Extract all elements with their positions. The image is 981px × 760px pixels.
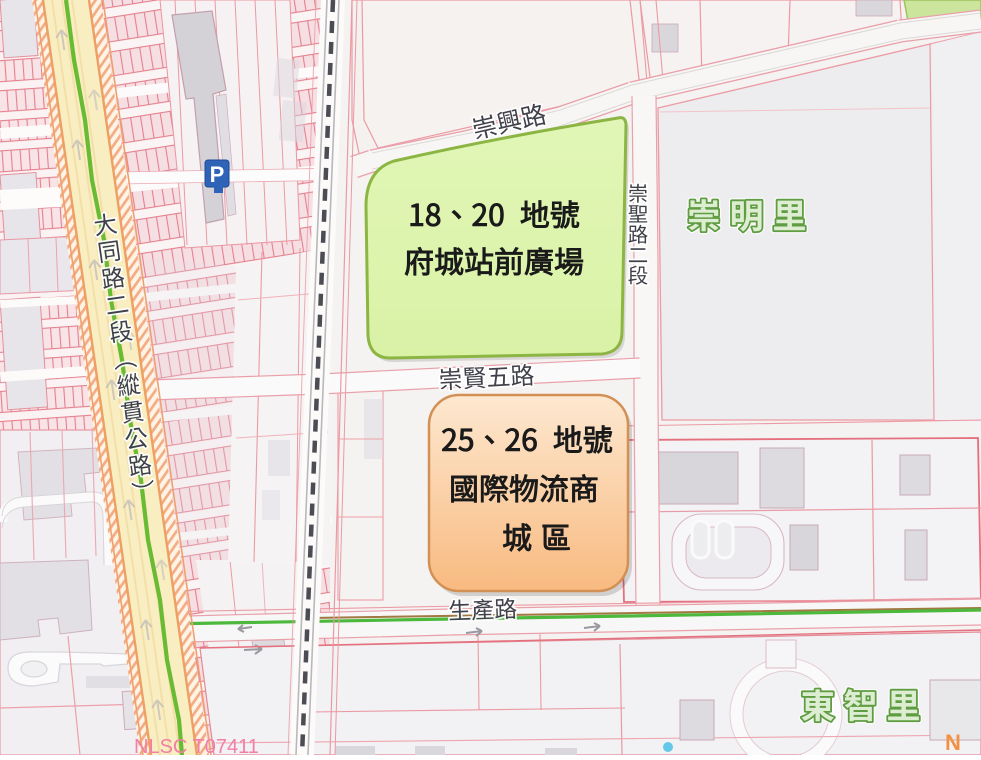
svg-text:P: P bbox=[210, 162, 225, 187]
svg-text:N: N bbox=[945, 730, 961, 755]
svg-text:NLSC T07411: NLSC T07411 bbox=[134, 736, 259, 755]
